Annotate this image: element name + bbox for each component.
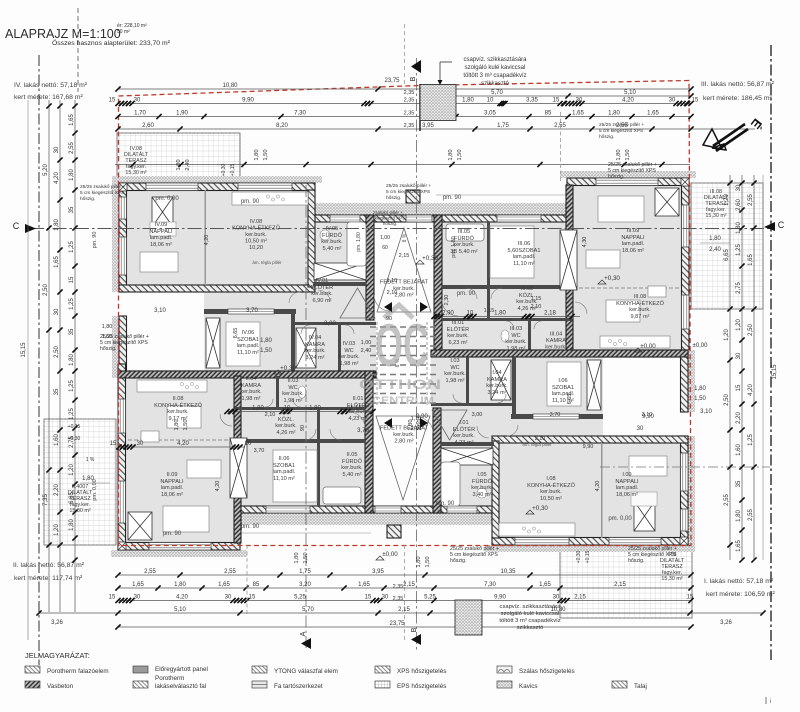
svg-text:30: 30: [576, 98, 583, 104]
svg-text:ker.burk.: ker.burk.: [447, 333, 469, 339]
svg-text:Szálas hőszigetelés: Szálas hőszigetelés: [519, 668, 575, 675]
svg-text:±0,00: ±0,00: [382, 551, 398, 558]
svg-text:4,20: 4,20: [748, 384, 754, 396]
svg-text:1,80: 1,80: [694, 386, 706, 392]
svg-text:II.05: II.05: [347, 452, 358, 458]
svg-text:30: 30: [736, 352, 742, 359]
svg-text:9,87 m²: 9,87 m²: [631, 314, 650, 320]
svg-text:1,20: 1,20: [736, 319, 742, 331]
svg-text:11,10 m²: 11,10 m²: [552, 398, 574, 404]
svg-text:szikkasztó: szikkasztó: [517, 625, 544, 631]
svg-text:1,80: 1,80: [736, 222, 742, 234]
svg-text:10: 10: [245, 441, 252, 447]
svg-text:1,50: 1,50: [303, 552, 309, 563]
svg-text:3,10: 3,10: [642, 412, 653, 418]
svg-text:6,90 m²: 6,90 m²: [313, 298, 332, 304]
svg-text:+0,30: +0,30: [532, 505, 548, 512]
svg-text:1,25: 1,25: [736, 244, 742, 256]
svg-text:1,80: 1,80: [176, 159, 182, 170]
svg-text:1,60: 1,60: [736, 444, 742, 456]
svg-text:1,60: 1,60: [54, 434, 60, 446]
svg-text:2,15: 2,15: [614, 582, 626, 588]
svg-text:ELŐTÉR: ELŐTÉR: [447, 326, 469, 333]
svg-text:3,00: 3,00: [472, 412, 483, 418]
svg-text:B: B: [410, 76, 417, 81]
svg-text:A: A: [300, 631, 307, 636]
svg-text:ker.burk.: ker.burk.: [545, 345, 567, 351]
svg-text:1,80: 1,80: [294, 552, 300, 563]
svg-text:FÜRDŐ: FÜRDŐ: [342, 458, 363, 465]
svg-text:lam.padl.: lam.padl.: [622, 241, 645, 247]
svg-text:WC: WC: [344, 348, 353, 354]
svg-text:1,90: 1,90: [176, 111, 188, 117]
svg-text:2,40: 2,40: [185, 159, 191, 170]
svg-text:2,35: 2,35: [393, 596, 404, 602]
svg-text:2,35: 2,35: [404, 98, 415, 104]
svg-text:3,70: 3,70: [357, 428, 369, 434]
svg-text:5,10: 5,10: [624, 90, 636, 96]
svg-text:18,06 m²: 18,06 m²: [622, 248, 644, 254]
svg-text:Porotherm falazóelem: Porotherm falazóelem: [47, 668, 109, 675]
svg-text:pm. 0,00: pm. 0,00: [92, 479, 98, 500]
svg-text:DILATÁLT: DILATÁLT: [660, 557, 685, 564]
svg-text:csapvíz. szikkasztására: csapvíz. szikkasztására: [500, 604, 562, 610]
svg-text:lam.padl.: lam.padl.: [616, 485, 639, 491]
svg-text:i: i: [770, 699, 771, 705]
svg-text:25/25 zsalukő pillér +: 25/25 zsalukő pillér +: [80, 184, 125, 190]
svg-text:1,20: 1,20: [54, 524, 60, 536]
svg-text:9,17 m²: 9,17 m²: [169, 416, 188, 422]
svg-text:15: 15: [249, 595, 256, 601]
svg-text:1,65: 1,65: [132, 582, 144, 588]
svg-text:pm. 1,80: pm. 1,80: [356, 232, 362, 252]
svg-text:2,75: 2,75: [736, 282, 742, 294]
svg-text:2,40: 2,40: [709, 247, 721, 253]
svg-text:III.08: III.08: [634, 294, 646, 300]
svg-text:11,10 m²: 11,10 m²: [237, 350, 259, 356]
svg-text:kert mérete: 186,45 m²: kert mérete: 186,45 m²: [703, 95, 772, 102]
svg-text:18,06 m²: 18,06 m²: [616, 492, 638, 498]
svg-text:+0,15: +0,15: [585, 550, 591, 563]
svg-text:3,40 m²: 3,40 m²: [473, 492, 492, 498]
svg-text:7,35: 7,35: [43, 494, 49, 506]
svg-text:4,20: 4,20: [54, 172, 60, 184]
svg-text:IV.04: IV.04: [309, 335, 322, 341]
svg-text:I.05: I.05: [477, 472, 486, 478]
svg-text:2,10: 2,10: [265, 412, 276, 418]
svg-text:ker.burk.: ker.burk.: [453, 242, 475, 248]
svg-text:NAPPALI: NAPPALI: [615, 479, 639, 485]
svg-text:DILATÁLT: DILATÁLT: [124, 151, 149, 158]
svg-text:1,20: 1,20: [69, 464, 75, 476]
svg-text:1,50: 1,50: [425, 556, 431, 567]
svg-text:10,35: 10,35: [500, 569, 516, 575]
svg-text:kert mérete: 117,74 m²: kert mérete: 117,74 m²: [14, 575, 83, 582]
svg-text:2,50: 2,50: [748, 324, 754, 336]
svg-text:11,10 m²: 11,10 m²: [513, 261, 535, 267]
svg-text:lam.padl.: lam.padl.: [237, 343, 260, 349]
svg-text:4,20: 4,20: [177, 441, 189, 447]
svg-text:Vasbeton: Vasbeton: [47, 683, 74, 690]
svg-text:4,20: 4,20: [622, 98, 634, 104]
svg-text:ker.burk.: ker.burk.: [453, 433, 475, 439]
svg-text:1,75: 1,75: [497, 123, 509, 129]
svg-text:5,20: 5,20: [43, 164, 49, 176]
svg-text:30: 30: [54, 146, 60, 153]
svg-text:ker.burk.: ker.burk.: [304, 348, 326, 354]
svg-text:1,50: 1,50: [263, 149, 269, 160]
svg-text:B: B: [411, 627, 418, 632]
svg-text:1,65: 1,65: [539, 582, 551, 588]
svg-text:1,25: 1,25: [748, 434, 754, 446]
svg-text:1,80: 1,80: [254, 149, 260, 160]
svg-text:III.03: III.03: [510, 326, 522, 332]
svg-text:4,26 m²: 4,26 m²: [518, 306, 537, 312]
svg-text:25/25 zsalukő pillér +: 25/25 zsalukő pillér +: [386, 183, 431, 189]
svg-text:ker.burk.: ker.burk.: [629, 307, 651, 313]
svg-text:30: 30: [54, 308, 60, 315]
svg-text:1,80: 1,80: [174, 582, 186, 588]
svg-text:lakáselválasztó fal: lakáselválasztó fal: [155, 683, 206, 690]
svg-text:2,50: 2,50: [43, 284, 49, 296]
svg-text:3,26: 3,26: [51, 620, 63, 626]
svg-text:2,90: 2,90: [442, 311, 454, 317]
svg-text:1,80: 1,80: [616, 149, 622, 160]
svg-text:II.09: II.09: [167, 472, 178, 478]
svg-text:5,40 m²: 5,40 m²: [323, 246, 342, 252]
svg-text:ker.burk.: ker.burk.: [282, 391, 304, 397]
svg-text:2,20: 2,20: [736, 412, 742, 424]
svg-text:ker.burk.: ker.burk.: [540, 489, 562, 495]
svg-text:1,50: 1,50: [625, 149, 631, 160]
svg-text:ker.burk.: ker.burk.: [167, 409, 189, 415]
svg-text:+0,30: +0,30: [68, 436, 81, 442]
svg-text:9,90: 9,90: [583, 444, 594, 450]
svg-text:1,50: 1,50: [457, 149, 463, 160]
svg-text:1,80: 1,80: [709, 236, 721, 242]
svg-text:30: 30: [382, 595, 389, 601]
svg-text:ELŐTÉR: ELŐTÉR: [311, 284, 333, 291]
svg-text:1,98 m²: 1,98 m²: [340, 361, 359, 367]
svg-text:SZOBA1: SZOBA1: [237, 337, 259, 343]
svg-text:1,50: 1,50: [694, 396, 706, 402]
svg-text:hőszig.: hőszig.: [599, 134, 614, 140]
svg-text:10,80: 10,80: [222, 83, 238, 89]
svg-text:IV.01: IV.01: [316, 278, 329, 284]
svg-text:1,98 m²: 1,98 m²: [446, 378, 465, 384]
svg-text:kiegészítő XPS: kiegészítő XPS: [375, 216, 406, 221]
svg-text:1,80: 1,80: [69, 169, 75, 181]
svg-text:5 cm kiegészítő XPS: 5 cm kiegészítő XPS: [386, 189, 430, 195]
svg-text:1,98 m²: 1,98 m²: [284, 398, 303, 404]
svg-text:hőszig.: hőszig.: [80, 196, 95, 202]
svg-text:1,00: 1,00: [380, 235, 390, 241]
svg-text:lam.padl.: lam.padl.: [513, 254, 536, 260]
svg-text:III. lakás nettó: 56,87 m²: III. lakás nettó: 56,87 m²: [701, 81, 775, 88]
svg-text:6,23 m²: 6,23 m²: [449, 340, 468, 346]
svg-text:1,65: 1,65: [748, 254, 754, 266]
svg-text:I.09: I.09: [622, 472, 631, 478]
svg-text:15: 15: [687, 595, 694, 601]
svg-text:szolgáló kulé kaviccsal: szolgáló kulé kaviccsal: [501, 611, 560, 617]
svg-text:I.08: I.08: [546, 476, 555, 482]
svg-text:15: 15: [109, 98, 116, 104]
svg-text:IV. lakás nettó: 57,18 m²: IV. lakás nettó: 57,18 m²: [14, 82, 88, 89]
svg-text:III.05: III.05: [458, 229, 470, 235]
svg-text:1,80: 1,80: [69, 354, 75, 366]
svg-text:KONYHA-ÉTKEZŐ: KONYHA-ÉTKEZŐ: [154, 402, 203, 409]
svg-text:lam.padl.: lam.padl.: [161, 485, 184, 491]
svg-text:9,90: 9,90: [494, 595, 506, 601]
svg-text:II.08: II.08: [173, 396, 184, 402]
svg-text:3,70: 3,70: [246, 308, 258, 314]
svg-text:IV.08: IV.08: [250, 219, 263, 225]
svg-text:1,80: 1,80: [416, 556, 422, 567]
svg-text:I.04: I.04: [492, 370, 501, 376]
svg-text:SZOBA1: SZOBA1: [552, 385, 574, 391]
svg-text:zsalukó pillér +: zsalukó pillér +: [373, 210, 403, 215]
svg-text:WC: WC: [288, 385, 297, 391]
svg-text:DILATÁLT: DILATÁLT: [68, 489, 93, 496]
svg-text:KONYHA-ÉTKEZŐ: KONYHA-ÉTKEZŐ: [616, 300, 665, 307]
svg-text:2,55: 2,55: [224, 569, 236, 575]
svg-text:5 cm kiegészítő XPS: 5 cm kiegészítő XPS: [80, 190, 124, 196]
svg-text:KAMRA: KAMRA: [487, 377, 507, 383]
svg-text:SZOBA1: SZOBA1: [273, 463, 295, 469]
svg-text:hőszig.: hőszig.: [450, 558, 466, 564]
svg-text:1,00: 1,00: [361, 340, 372, 346]
svg-text:KONYHA-ÉTKEZŐ: KONYHA-ÉTKEZŐ: [527, 482, 576, 489]
svg-text:pm. 90: pm. 90: [241, 524, 260, 530]
svg-text:FEDETT BEJÁRAT: FEDETT BEJÁRAT: [380, 279, 429, 286]
svg-text:1,80: 1,80: [608, 111, 620, 117]
svg-text:1,98 m²: 1,98 m²: [507, 346, 526, 352]
svg-text:5,70: 5,70: [491, 90, 503, 96]
svg-text:5 cm kiegészítő XPS: 5 cm kiegészítő XPS: [599, 128, 643, 134]
svg-text:4,20: 4,20: [204, 235, 210, 246]
svg-text:1,80: 1,80: [309, 406, 321, 412]
svg-text:II.01: II.01: [353, 396, 364, 402]
svg-text:8,20: 8,20: [276, 123, 288, 129]
svg-text:NAPPALI: NAPPALI: [149, 229, 173, 235]
svg-text:10,50 m²: 10,50 m²: [245, 239, 267, 245]
svg-text:15: 15: [365, 595, 372, 601]
svg-text:1,75: 1,75: [299, 569, 311, 575]
svg-text:3,95: 3,95: [372, 569, 384, 575]
svg-text:1,98 m²: 1,98 m²: [242, 396, 261, 402]
svg-text:+0,15: +0,15: [230, 163, 236, 176]
svg-text:EPS hőszigetelés: EPS hőszigetelés: [397, 683, 446, 690]
svg-text:1,65: 1,65: [358, 582, 370, 588]
svg-text:1,80: 1,80: [494, 311, 506, 317]
svg-text:11,10 m²: 11,10 m²: [273, 476, 295, 482]
svg-text:ker.burk.: ker.burk.: [516, 299, 538, 305]
svg-text:1,65: 1,65: [54, 256, 60, 268]
svg-text:ám. tégla pillér: ám. tégla pillér: [522, 442, 552, 447]
svg-text:3,00: 3,00: [324, 321, 336, 327]
svg-text:KÖZL.: KÖZL.: [519, 292, 536, 299]
svg-text:1,65: 1,65: [647, 111, 659, 117]
svg-text:1,65: 1,65: [736, 540, 742, 552]
svg-text:15,30 m²: 15,30 m²: [69, 508, 90, 514]
svg-text:Előregyártott panel: Előregyártott panel: [155, 666, 208, 673]
svg-text:2,10: 2,10: [535, 436, 546, 442]
svg-text:OTTHON: OTTHON: [359, 376, 441, 392]
svg-text:pm. 90: pm. 90: [92, 232, 98, 249]
svg-text:ker.burk.: ker.burk.: [505, 339, 527, 345]
svg-text:II.04: II.04: [246, 376, 257, 382]
svg-text:+0,30: +0,30: [604, 275, 620, 282]
svg-text:C: C: [778, 220, 785, 230]
svg-text:85: 85: [253, 582, 260, 588]
svg-text:1,80: 1,80: [82, 476, 94, 482]
svg-text:15: 15: [736, 384, 742, 391]
svg-text:hőszig.: hőszig.: [386, 195, 401, 201]
svg-text:KAMRA: KAMRA: [241, 383, 261, 389]
svg-text:±0,00: ±0,00: [693, 343, 709, 349]
svg-text:NAPPALI: NAPPALI: [160, 479, 184, 485]
svg-text:ker.burk.: ker.burk.: [275, 423, 297, 429]
svg-text:2,35: 2,35: [404, 111, 415, 117]
svg-text:töltött 3 m³ csapadékvíz: töltött 3 m³ csapadékvíz: [499, 618, 560, 624]
svg-text:2,55: 2,55: [748, 194, 754, 206]
svg-text:35: 35: [69, 328, 75, 335]
svg-text:85: 85: [545, 111, 552, 117]
svg-text:WC: WC: [511, 333, 520, 339]
svg-text:Porotherm: Porotherm: [155, 675, 184, 682]
svg-text:hőszig.: hőszig.: [628, 558, 644, 564]
svg-text:II.06: II.06: [279, 456, 290, 462]
svg-text:hőszig.: hőszig.: [608, 174, 624, 180]
svg-text:IV.03: IV.03: [343, 341, 356, 347]
svg-text:ker.burk.: ker.burk.: [486, 383, 508, 389]
svg-text:18,06 m²: 18,06 m²: [161, 492, 183, 498]
svg-text:ker.burk.: ker.burk.: [338, 354, 360, 360]
svg-text:FÜRDŐ: FÜRDŐ: [454, 235, 475, 242]
svg-text:XPS hőszigetelés: XPS hőszigetelés: [397, 668, 446, 675]
svg-text:2,20: 2,20: [54, 484, 60, 496]
svg-text:3,20: 3,20: [299, 582, 311, 588]
svg-text:4,20: 4,20: [595, 481, 601, 492]
svg-text:3,10: 3,10: [154, 308, 166, 314]
svg-text:lam.padl.: lam.padl.: [150, 235, 173, 241]
svg-text:6,65: 6,65: [724, 249, 730, 261]
svg-text:1,65: 1,65: [69, 114, 75, 126]
svg-text:ELŐTÉR: ELŐTÉR: [347, 402, 369, 409]
svg-text:30: 30: [134, 595, 141, 601]
svg-text:35: 35: [54, 388, 60, 395]
svg-text:lam.padl.: lam.padl.: [552, 391, 575, 397]
svg-text:4,20: 4,20: [176, 595, 188, 601]
svg-text:Összes hasznos alapterület: 23: Összes hasznos alapterület: 233,70 m²: [52, 39, 171, 47]
svg-text:KAMRA: KAMRA: [305, 342, 325, 348]
svg-text:1,20: 1,20: [724, 329, 730, 341]
svg-text:3,35: 3,35: [526, 98, 538, 104]
svg-text:8 %: 8 %: [402, 233, 408, 242]
svg-text:pm. 90: pm. 90: [443, 195, 462, 201]
svg-text:5,25: 5,25: [294, 595, 306, 601]
svg-text:10: 10: [487, 98, 494, 104]
svg-text:1,80: 1,80: [102, 324, 113, 330]
svg-text:ker.burk.: ker.burk.: [393, 432, 415, 438]
svg-text:2,55: 2,55: [724, 494, 730, 506]
svg-text:JELMAGYARÁZAT:: JELMAGYARÁZAT:: [25, 651, 90, 660]
svg-text:10,20: 10,20: [249, 245, 263, 251]
svg-text:KÖZL.: KÖZL.: [278, 416, 295, 423]
svg-text:3B 5,40 m²: 3B 5,40 m²: [450, 249, 477, 255]
svg-text:1,65: 1,65: [572, 111, 584, 117]
svg-text:III.01: III.01: [452, 320, 464, 326]
svg-text:pm. 90: pm. 90: [163, 531, 182, 537]
svg-text:10: 10: [467, 311, 474, 317]
svg-text:15,30 m²: 15,30 m²: [661, 576, 682, 582]
svg-text:3,26: 3,26: [720, 620, 732, 626]
svg-text:2,80 m²: 2,80 m²: [395, 439, 414, 445]
svg-text:ker.burk.: ker.burk.: [321, 239, 343, 245]
svg-text:±0,00: ±0,00: [640, 343, 656, 350]
svg-text:1,80: 1,80: [252, 406, 264, 412]
svg-text:1,50: 1,50: [260, 348, 272, 354]
svg-text:1,10: 1,10: [411, 416, 422, 422]
svg-text:Fa tartószerkezet: Fa tartószerkezet: [274, 683, 323, 690]
svg-text:1,80: 1,80: [462, 98, 474, 104]
svg-text:+0,30: +0,30: [280, 365, 296, 372]
svg-text:30: 30: [553, 595, 560, 601]
svg-text:5,60SZOBA1: 5,60SZOBA1: [508, 248, 541, 254]
svg-text:7,30: 7,30: [484, 582, 496, 588]
svg-text:hőszig.: hőszig.: [383, 221, 397, 226]
svg-text:15,30 m²: 15,30 m²: [705, 213, 726, 219]
svg-text:23,75: 23,75: [384, 78, 400, 84]
svg-text:1,70: 1,70: [134, 111, 146, 117]
svg-text:2,50: 2,50: [54, 346, 60, 358]
svg-text:1,80: 1,80: [260, 338, 272, 344]
svg-text:NAPPALI: NAPPALI: [621, 235, 645, 241]
svg-text:pm. 90: pm. 90: [436, 501, 455, 507]
svg-text:2,15: 2,15: [403, 582, 415, 588]
svg-text:3,24 m²: 3,24 m²: [306, 355, 325, 361]
svg-text:2,35: 2,35: [404, 90, 415, 96]
svg-text:+0,30: +0,30: [221, 163, 227, 176]
svg-text:pm. 0,00: pm. 0,00: [155, 196, 179, 202]
svg-text:+0,15: +0,15: [68, 424, 81, 430]
svg-text:1,80: 1,80: [69, 519, 75, 531]
svg-text:35: 35: [736, 480, 742, 487]
svg-text:4,30: 4,30: [582, 237, 588, 248]
svg-text:ker.burk.: ker.burk.: [311, 291, 333, 297]
svg-text:hőszig.: hőszig.: [100, 346, 116, 352]
svg-text:II.03: II.03: [288, 378, 299, 384]
svg-text:1,80: 1,80: [448, 149, 454, 160]
svg-text:5,40 m²: 5,40 m²: [343, 472, 362, 478]
svg-text:3,10: 3,10: [700, 409, 712, 415]
svg-text:ám. tégla pillér: ám. tégla pillér: [252, 260, 282, 265]
svg-text:1,25: 1,25: [69, 241, 75, 253]
svg-text:2,60: 2,60: [736, 199, 742, 211]
svg-text:2,50: 2,50: [724, 394, 730, 406]
svg-text:IV.06: IV.06: [242, 330, 255, 336]
svg-text:35: 35: [69, 206, 75, 213]
svg-text:I. lakás nettó: 57,18 m²: I. lakás nettó: 57,18 m²: [704, 578, 774, 585]
svg-text:FEDETT BEJÁRAT: FEDETT BEJÁRAT: [380, 425, 429, 432]
svg-text:3,24 m²: 3,24 m²: [488, 390, 507, 396]
svg-text:2,55: 2,55: [144, 569, 156, 575]
svg-text:4,23 m²: 4,23 m²: [455, 440, 474, 446]
svg-text:30: 30: [137, 441, 144, 447]
svg-text:60: 60: [382, 245, 388, 251]
svg-text:Kavics: Kavics: [519, 683, 538, 690]
svg-text:ker.burk.: ker.burk.: [444, 371, 466, 377]
